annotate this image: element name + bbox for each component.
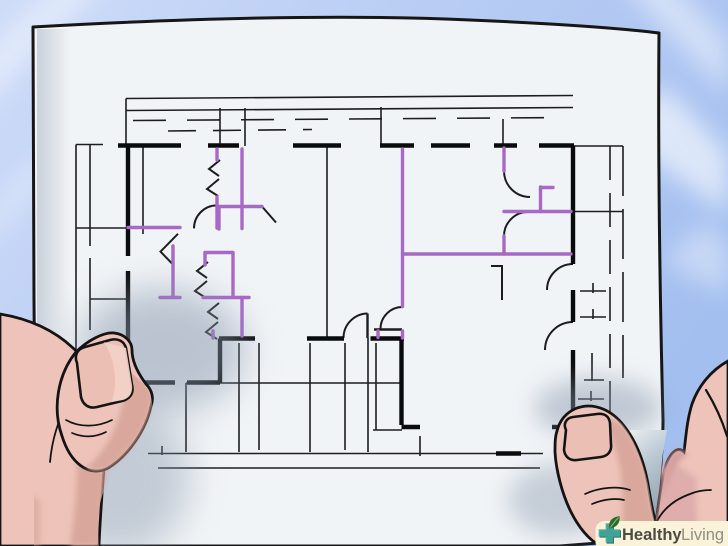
svg-text:Living: Living — [681, 526, 724, 544]
svg-text:Healthy: Healthy — [622, 526, 682, 544]
